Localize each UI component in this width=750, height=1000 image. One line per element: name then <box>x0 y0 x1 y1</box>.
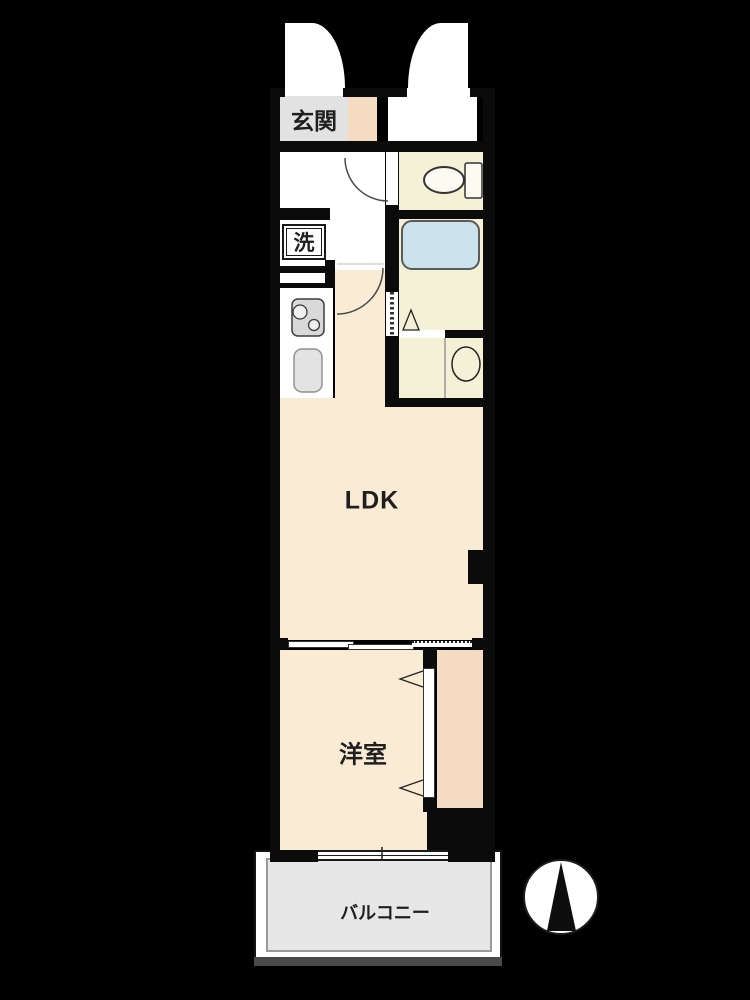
balcony-label: バルコニー <box>340 899 430 925</box>
wall <box>483 88 495 812</box>
entrance-door-closed-right <box>407 88 470 96</box>
wall <box>270 638 288 650</box>
bath-floor <box>399 218 483 330</box>
floor-plan: 玄関 洗 LDK 洋室 バルコニー <box>0 0 750 1000</box>
wall <box>270 141 495 152</box>
wall <box>385 398 495 407</box>
laundry-label: 洗 <box>294 227 315 257</box>
folding-door-opening <box>386 292 398 336</box>
entrance-door-swing-left <box>285 23 345 88</box>
toilet-floor <box>399 151 483 210</box>
genkan-step <box>348 95 377 142</box>
kitchen-pass-slot <box>280 261 325 266</box>
wall <box>270 850 318 862</box>
pillar <box>468 550 495 584</box>
wall <box>270 208 330 220</box>
wall <box>470 88 495 97</box>
wall <box>427 808 495 852</box>
wall <box>423 648 437 670</box>
closet-floor <box>437 650 483 808</box>
storage-box <box>388 95 477 142</box>
wall <box>270 283 335 288</box>
ldk-floor-upper <box>335 270 385 398</box>
entrance-door-swing-right <box>408 23 468 88</box>
compass-icon <box>524 860 598 934</box>
ldk-label: LDK <box>345 487 399 516</box>
wall <box>270 88 285 97</box>
washroom-door-opening <box>399 330 445 338</box>
washroom-floor <box>399 338 483 398</box>
sliding-door-panel <box>348 644 414 650</box>
toilet-door-opening <box>386 152 398 205</box>
hanging-wall-dotted <box>412 641 472 647</box>
entrance-door-closed-left <box>285 88 343 96</box>
sliding-door-panel <box>288 641 354 648</box>
wall <box>445 330 495 338</box>
balcony-edge <box>254 957 502 966</box>
kitchen-counter <box>280 288 333 398</box>
closet-folding-door <box>423 668 435 798</box>
balcony-window <box>318 850 448 861</box>
bedroom-label: 洋室 <box>339 735 387 770</box>
wall <box>448 850 495 862</box>
kitchen-pass-slot <box>280 273 325 283</box>
wall <box>472 638 495 650</box>
wall <box>270 266 335 273</box>
wall <box>390 210 495 219</box>
ldk-floor <box>280 398 483 640</box>
genkan-label: 玄関 <box>291 102 337 136</box>
wall <box>270 88 280 862</box>
wall <box>343 88 407 97</box>
